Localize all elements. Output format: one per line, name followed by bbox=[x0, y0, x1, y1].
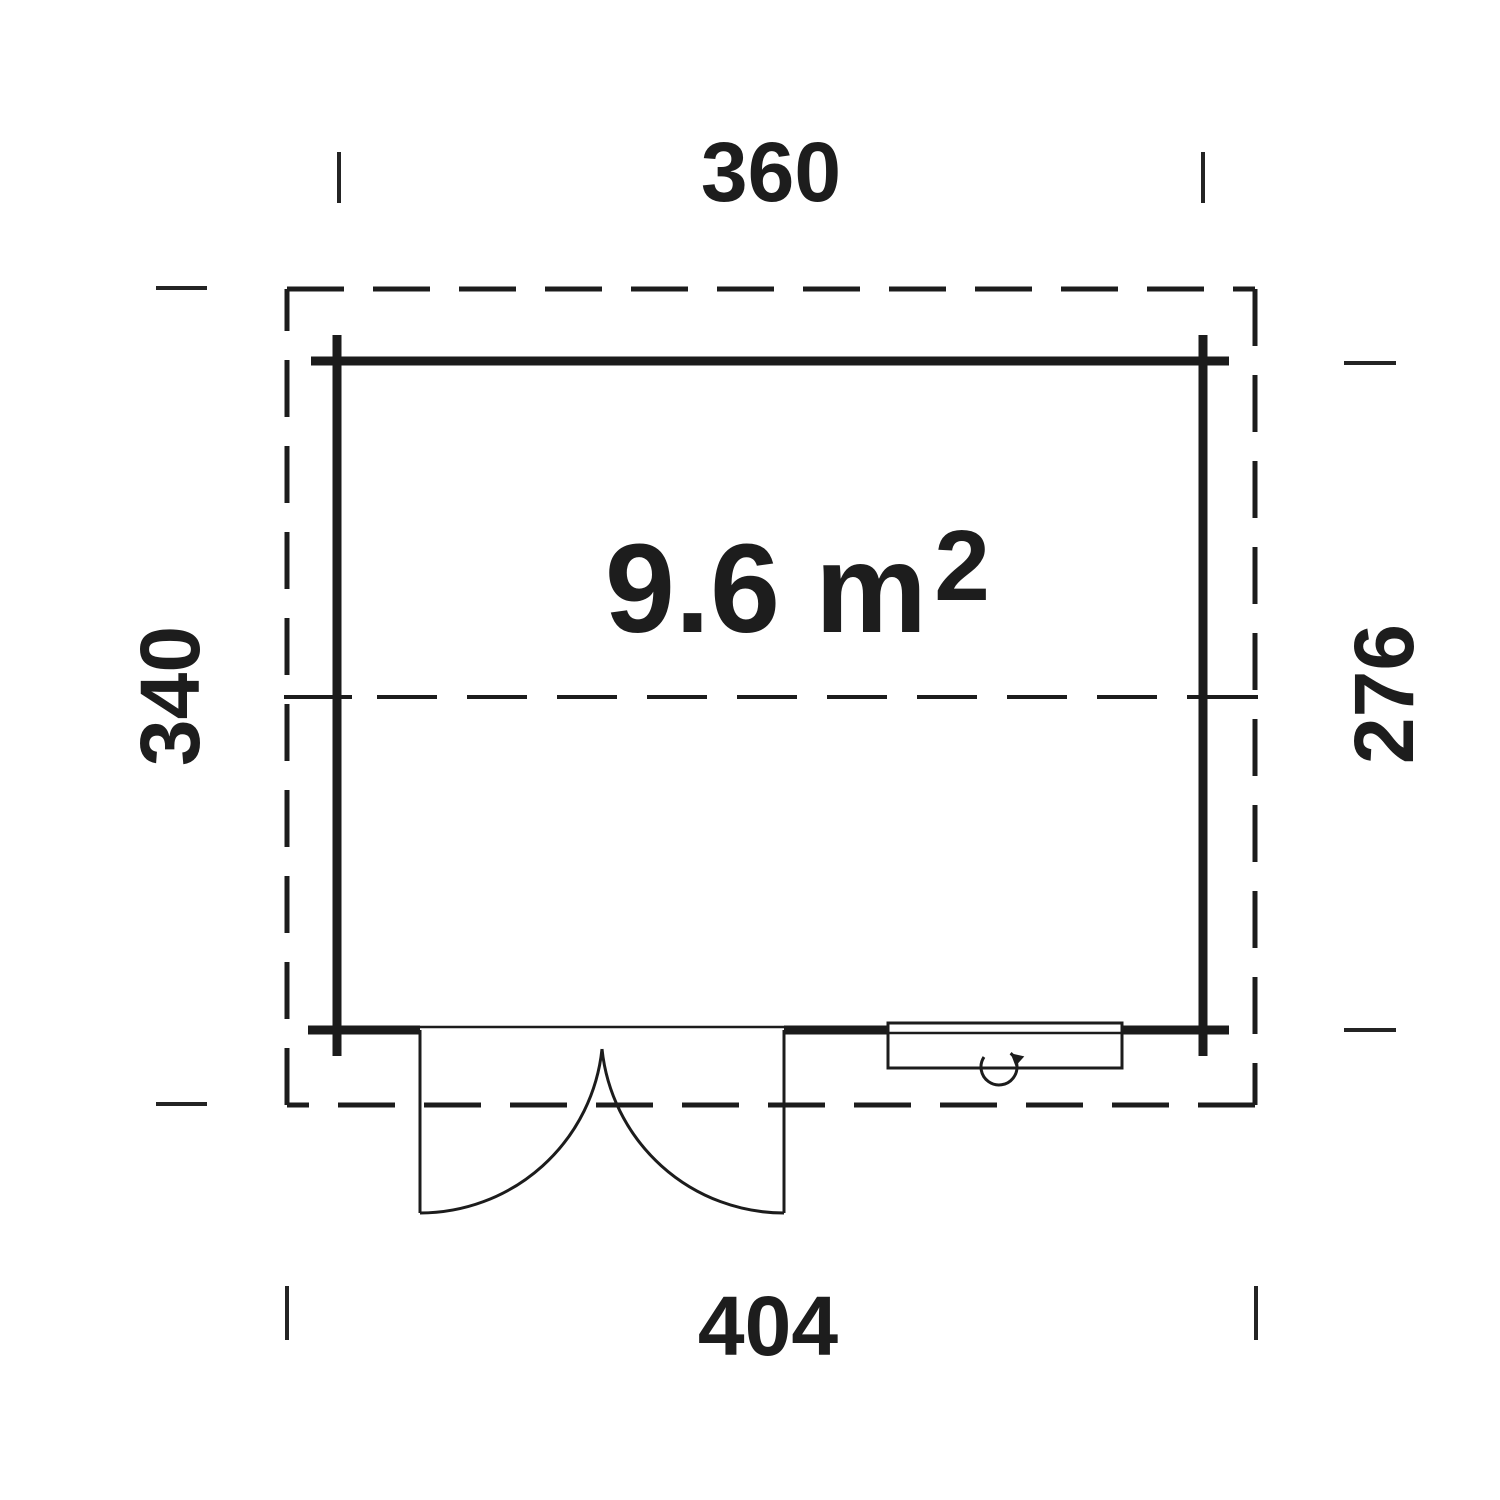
area-superscript: 2 bbox=[934, 510, 990, 622]
window-frame bbox=[888, 1023, 1122, 1068]
dimension-right-label: 276 bbox=[1337, 624, 1431, 764]
door-left-swing-arc bbox=[420, 1049, 602, 1213]
double-door-symbol bbox=[420, 1027, 784, 1213]
area-label: 9.6 m bbox=[605, 518, 927, 659]
door-right-swing-arc bbox=[602, 1049, 784, 1213]
dimension-bottom-label: 404 bbox=[698, 1279, 838, 1373]
dimension-ticks bbox=[156, 152, 1396, 1340]
dimension-top-label: 360 bbox=[701, 125, 841, 219]
window-symbol bbox=[888, 1023, 1122, 1085]
floor-plan-drawing: 360 404 340 276 9.6 m 2 bbox=[0, 0, 1500, 1500]
floor-plan-canvas: 360 404 340 276 9.6 m 2 bbox=[0, 0, 1500, 1500]
dimension-left-label: 340 bbox=[123, 626, 217, 766]
